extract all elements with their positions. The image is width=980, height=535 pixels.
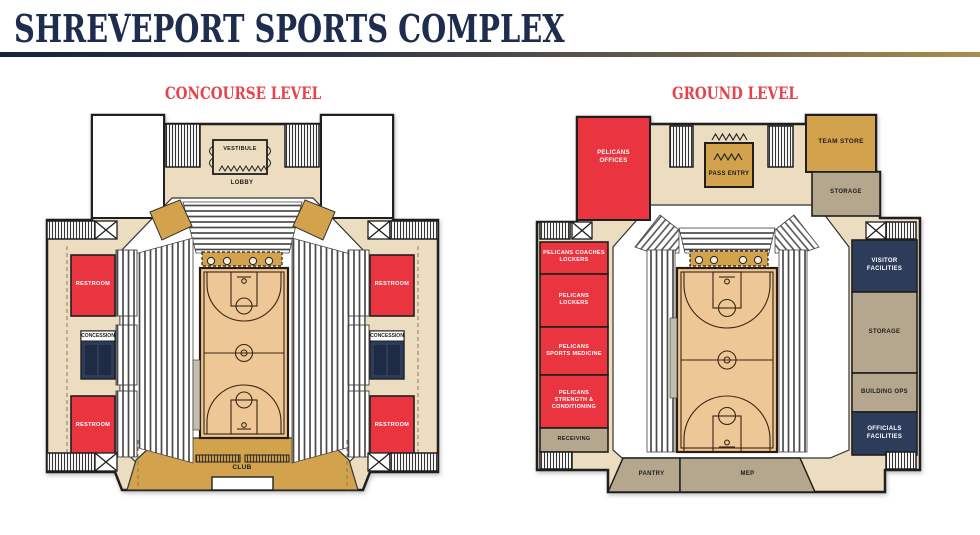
pass-entry-label: PASS ENTRY xyxy=(705,171,753,179)
club-stage xyxy=(212,477,273,490)
officials-facilities-label: OFFICIALS FACILITIES xyxy=(852,426,917,441)
restroom-bottom-right-label: RESTROOM xyxy=(370,422,414,429)
restroom-bottom-left-label: RESTROOM xyxy=(71,422,115,429)
mep-label: MEP xyxy=(680,471,815,479)
pelicans-strength-conditioning-label: PELICANS STRENGTH & CONDITIONING xyxy=(540,390,608,411)
team-store-label: TEAM STORE xyxy=(806,138,876,146)
corner-room-left xyxy=(92,115,164,218)
pelicans-coaches-lockers-label: PELICANS COACHES LOCKERS xyxy=(540,250,608,264)
storage-upper-label: STORAGE xyxy=(812,189,880,197)
corner-room-right xyxy=(321,115,393,218)
pelicans-offices-label: PELICANS OFFICES xyxy=(577,150,650,165)
receiving-label: RECEIVING xyxy=(540,436,608,443)
visitor-facilities-label: VISITOR FACILITIES xyxy=(852,258,917,273)
vestibule-label: VESTIBULE xyxy=(213,146,267,153)
basketball-court xyxy=(670,268,777,452)
team-bench xyxy=(193,360,200,430)
pantry-label: PANTRY xyxy=(623,471,680,479)
basketball-court xyxy=(193,268,288,438)
storage-right-label: STORAGE xyxy=(852,329,917,337)
restroom-top-left-label: RESTROOM xyxy=(71,281,115,288)
club-label: CLUB xyxy=(212,464,272,472)
team-bench xyxy=(670,318,677,398)
infographic-canvas: SHREVEPORT SPORTS COMPLEX CONCOURSE LEVE… xyxy=(0,0,980,535)
pelicans-sports-medicine-label: PELICANS SPORTS MEDICINE xyxy=(540,344,608,358)
club-railing-left xyxy=(196,455,240,462)
concession-right-label: CONCESSION xyxy=(370,333,404,339)
concession-left-label: CONCESSION xyxy=(81,333,115,339)
lobby-label: LOBBY xyxy=(212,180,272,188)
scorer-table xyxy=(690,251,768,266)
club-railing-right xyxy=(245,455,289,462)
building-ops-label: BUILDING OPS xyxy=(852,389,917,397)
pelicans-offices-box xyxy=(577,117,650,220)
scorer-table xyxy=(202,252,282,266)
floorplans-svg xyxy=(0,0,980,535)
restroom-top-right-label: RESTROOM xyxy=(370,281,414,288)
pelicans-lockers-label: PELICANS LOCKERS xyxy=(540,293,608,307)
concourse-level-plan xyxy=(47,115,438,490)
